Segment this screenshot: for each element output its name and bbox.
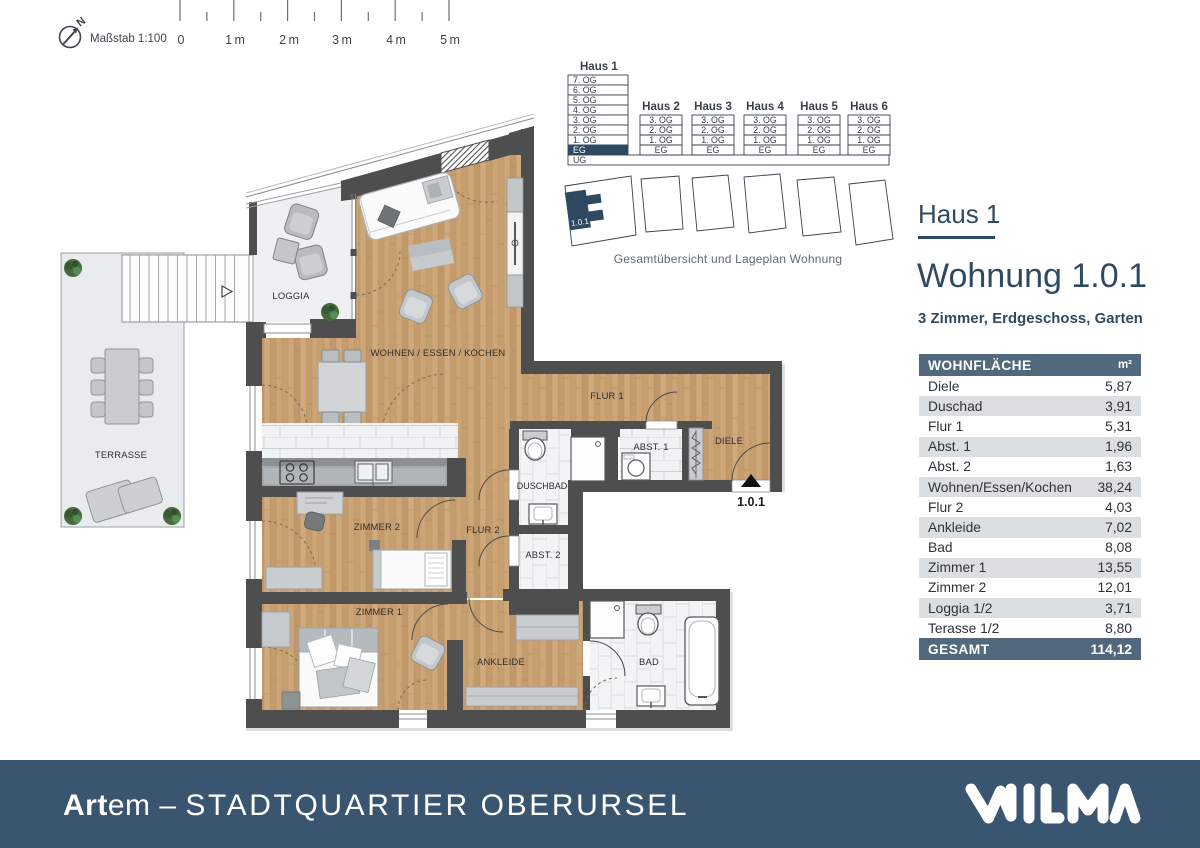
svg-text:6. OG: 6. OG xyxy=(573,85,597,95)
svg-text:FLUR 1: FLUR 1 xyxy=(590,390,624,401)
svg-text:1.0.1: 1.0.1 xyxy=(737,495,765,509)
svg-text:UG: UG xyxy=(573,155,586,165)
svg-text:2. OG: 2. OG xyxy=(701,125,725,135)
svg-text:ABST. 1: ABST. 1 xyxy=(633,441,668,452)
svg-text:DIELE: DIELE xyxy=(715,435,743,446)
svg-text:3. OG: 3. OG xyxy=(701,115,725,125)
svg-text:2 m: 2 m xyxy=(279,33,299,47)
svg-text:1. OG: 1. OG xyxy=(649,135,673,145)
svg-text:Maßstab 1:100: Maßstab 1:100 xyxy=(90,33,167,45)
svg-text:EG: EG xyxy=(655,145,668,155)
svg-text:FLUR 2: FLUR 2 xyxy=(466,524,500,535)
svg-text:1 m: 1 m xyxy=(225,33,245,47)
svg-text:3. OG: 3. OG xyxy=(807,115,831,125)
svg-text:3. OG: 3. OG xyxy=(857,115,881,125)
svg-text:1. OG: 1. OG xyxy=(701,135,725,145)
svg-text:EG: EG xyxy=(813,145,826,155)
svg-text:ABST. 2: ABST. 2 xyxy=(525,549,560,560)
svg-text:3. OG: 3. OG xyxy=(573,115,597,125)
svg-text:2. OG: 2. OG xyxy=(649,125,673,135)
svg-text:2. OG: 2. OG xyxy=(573,125,597,135)
svg-text:3 m: 3 m xyxy=(332,33,352,47)
svg-text:2. OG: 2. OG xyxy=(857,125,881,135)
svg-text:EG: EG xyxy=(759,145,772,155)
svg-text:5. OG: 5. OG xyxy=(573,95,597,105)
svg-text:1. OG: 1. OG xyxy=(753,135,777,145)
svg-text:1. OG: 1. OG xyxy=(573,135,597,145)
svg-text:Haus 5: Haus 5 xyxy=(800,101,838,113)
svg-text:Haus 2: Haus 2 xyxy=(642,101,680,113)
svg-text:Haus 4: Haus 4 xyxy=(746,101,784,113)
svg-text:5 m: 5 m xyxy=(440,33,460,47)
svg-text:3. OG: 3. OG xyxy=(649,115,673,125)
svg-text:4. OG: 4. OG xyxy=(573,105,597,115)
svg-text:ZIMMER 2: ZIMMER 2 xyxy=(354,521,400,532)
svg-text:LOGGIA: LOGGIA xyxy=(272,290,310,301)
svg-text:4 m: 4 m xyxy=(386,33,406,47)
svg-text:BAD: BAD xyxy=(639,656,659,667)
svg-text:EG: EG xyxy=(863,145,876,155)
svg-text:3. OG: 3. OG xyxy=(753,115,777,125)
svg-text:1. OG: 1. OG xyxy=(857,135,881,145)
svg-text:DUSCHBAD: DUSCHBAD xyxy=(517,481,568,491)
svg-text:N: N xyxy=(74,15,88,29)
svg-text:1. OG: 1. OG xyxy=(807,135,831,145)
svg-text:WOHNEN / ESSEN / KOCHEN: WOHNEN / ESSEN / KOCHEN xyxy=(371,347,506,358)
svg-text:2. OG: 2. OG xyxy=(753,125,777,135)
svg-text:Haus 6: Haus 6 xyxy=(850,101,888,113)
svg-text:ZIMMER 1: ZIMMER 1 xyxy=(356,606,402,617)
svg-text:EG: EG xyxy=(573,145,586,155)
svg-text:Haus 3: Haus 3 xyxy=(694,101,732,113)
svg-text:Gesamtübersicht und Lageplan W: Gesamtübersicht und Lageplan Wohnung xyxy=(614,252,842,266)
svg-text:EG: EG xyxy=(707,145,720,155)
svg-text:7. OG: 7. OG xyxy=(573,75,597,85)
svg-text:0: 0 xyxy=(178,33,185,47)
svg-text:2. OG: 2. OG xyxy=(807,125,831,135)
svg-text:ANKLEIDE: ANKLEIDE xyxy=(477,656,525,667)
svg-text:Haus 1: Haus 1 xyxy=(580,61,618,73)
svg-text:TERRASSE: TERRASSE xyxy=(95,449,147,460)
